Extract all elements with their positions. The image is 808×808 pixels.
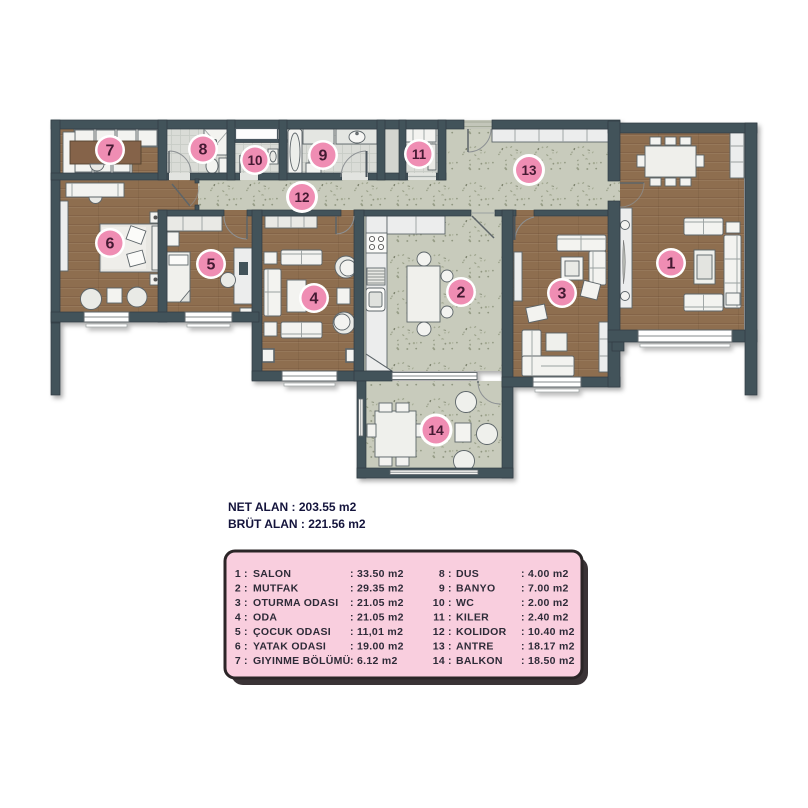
svg-text::: : xyxy=(244,583,248,595)
svg-text:KOLIDOR: KOLIDOR xyxy=(456,626,507,638)
svg-text::: : xyxy=(244,641,248,653)
svg-text:10: 10 xyxy=(433,597,445,609)
svg-text:WC: WC xyxy=(456,597,474,609)
svg-text:: 21.05 m2: : 21.05 m2 xyxy=(350,597,404,609)
svg-text::: : xyxy=(448,641,452,653)
svg-text::: : xyxy=(448,626,452,638)
svg-text:DUS: DUS xyxy=(456,568,479,580)
svg-text:3: 3 xyxy=(558,286,567,303)
svg-text:: 2.00 m2: : 2.00 m2 xyxy=(521,597,569,609)
svg-text:: 6.12 m2: : 6.12 m2 xyxy=(350,655,398,667)
svg-text:1: 1 xyxy=(667,256,676,273)
svg-text::: : xyxy=(448,612,452,624)
svg-text::: : xyxy=(448,655,452,667)
svg-text:YATAK ODASI: YATAK ODASI xyxy=(253,641,326,653)
svg-text:BANYO: BANYO xyxy=(456,583,495,595)
svg-text:14: 14 xyxy=(433,655,445,667)
svg-text:4: 4 xyxy=(310,291,319,308)
svg-text:13: 13 xyxy=(433,641,445,653)
svg-text::: : xyxy=(244,626,248,638)
svg-text:8: 8 xyxy=(439,568,445,580)
svg-text:12: 12 xyxy=(433,626,445,638)
svg-text:6: 6 xyxy=(235,641,241,653)
svg-text:6: 6 xyxy=(106,236,115,253)
svg-text:: 4.00 m2: : 4.00 m2 xyxy=(521,568,569,580)
svg-text:5: 5 xyxy=(235,626,241,638)
svg-text:: 29.35 m2: : 29.35 m2 xyxy=(350,583,404,595)
svg-text:: 21.05 m2: : 21.05 m2 xyxy=(350,612,404,624)
svg-text:: 18.50 m2: : 18.50 m2 xyxy=(521,655,575,667)
svg-text:ANTRE: ANTRE xyxy=(456,641,494,653)
svg-text:: 33.50 m2: : 33.50 m2 xyxy=(350,568,404,580)
svg-text:5: 5 xyxy=(207,257,216,274)
svg-text:ODA: ODA xyxy=(253,612,277,624)
svg-text:: 11,01 m2: : 11,01 m2 xyxy=(350,626,403,638)
svg-text:GIYINME BÖLÜMÜ: GIYINME BÖLÜMÜ xyxy=(253,654,351,667)
svg-text:MUTFAK: MUTFAK xyxy=(253,583,299,595)
svg-text:14: 14 xyxy=(428,422,444,438)
svg-text:2: 2 xyxy=(457,285,466,302)
svg-text:: 18.17 m2: : 18.17 m2 xyxy=(521,641,575,653)
svg-text::: : xyxy=(448,568,452,580)
svg-text::: : xyxy=(244,655,248,667)
svg-text::: : xyxy=(448,597,452,609)
svg-text:: 2.40 m2: : 2.40 m2 xyxy=(521,612,569,624)
svg-text:9: 9 xyxy=(319,148,328,165)
svg-text:KILER: KILER xyxy=(456,612,489,624)
svg-text:OTURMA ODASI: OTURMA ODASI xyxy=(253,597,338,609)
svg-text:2: 2 xyxy=(235,583,241,595)
svg-text:3: 3 xyxy=(235,597,241,609)
svg-text:13: 13 xyxy=(521,163,537,178)
svg-text:10: 10 xyxy=(247,153,262,168)
svg-text:7: 7 xyxy=(106,143,115,160)
svg-text:11: 11 xyxy=(412,147,427,162)
svg-text:12: 12 xyxy=(294,190,309,205)
svg-text::: : xyxy=(244,568,248,580)
svg-text:SALON: SALON xyxy=(253,568,291,580)
svg-text:8: 8 xyxy=(199,142,208,159)
svg-text:1: 1 xyxy=(235,568,241,580)
svg-text:: 10.40 m2: : 10.40 m2 xyxy=(521,626,575,638)
svg-text:NET ALAN : 203.55 m2: NET ALAN : 203.55 m2 xyxy=(228,500,357,514)
svg-text:9: 9 xyxy=(439,583,445,595)
svg-text::: : xyxy=(244,612,248,624)
svg-text:7: 7 xyxy=(235,655,241,667)
svg-text:: 19.00 m2: : 19.00 m2 xyxy=(350,641,404,653)
svg-text::: : xyxy=(448,583,452,595)
svg-text:ÇOCUK ODASI: ÇOCUK ODASI xyxy=(253,626,331,638)
svg-text:4: 4 xyxy=(235,612,241,624)
svg-text::: : xyxy=(244,597,248,609)
svg-text:BRÜT ALAN : 221.56 m2: BRÜT ALAN : 221.56 m2 xyxy=(228,516,366,531)
svg-text:: 7.00 m2: : 7.00 m2 xyxy=(521,583,569,595)
svg-text:11: 11 xyxy=(433,612,445,624)
svg-text:BALKON: BALKON xyxy=(456,655,503,667)
